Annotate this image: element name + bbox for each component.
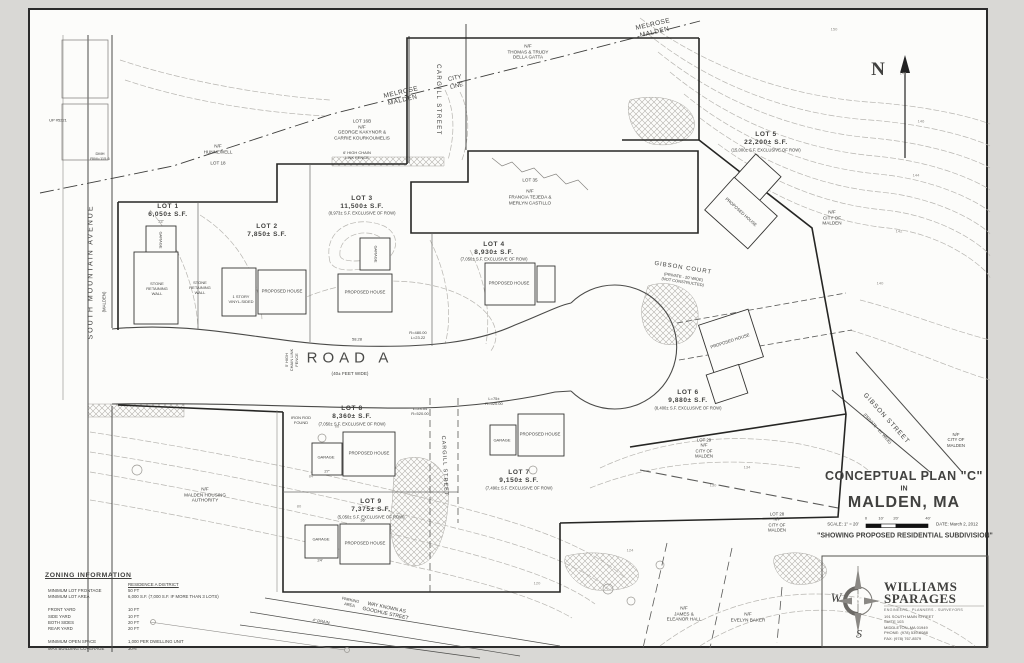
lot-7-note: (7,490± S.F. EXCLUSIVE OF ROW)	[486, 485, 553, 490]
lot-2-label: LOT 2 7,850± S.F.	[247, 223, 286, 239]
existing-dwelling-note: 1 STORY VINYL-SIDED	[228, 295, 253, 305]
scale-tick-40: 40'	[925, 517, 930, 522]
plan-title: CONCEPTUAL PLAN "C"	[825, 469, 983, 485]
owner-tejeda-castillo: LOT 35 N/F FRANCIA TEJEDA & MERLYN CASTI…	[509, 178, 552, 207]
contour-label: 88	[335, 425, 339, 430]
contour-label: 148	[900, 72, 907, 77]
city-boundary-line	[40, 21, 700, 193]
lot-5-note: (15,000± S.F. EXCLUSIVE OF ROW)	[731, 147, 800, 152]
south-mountain-avenue-label: SOUTH MOUNTAIN AVENUE	[88, 204, 97, 339]
logo-address: 191 SOUTH MAIN STREET SUITE 103 MIDDLETO…	[884, 614, 934, 641]
lot-3-label: LOT 3 11,500± S.F.	[340, 195, 383, 211]
lot-9-note: (5,050± S.F. EXCLUSIVE OF ROW)	[338, 514, 405, 519]
lot-7-label: LOT 7 9,150± S.F.	[499, 469, 538, 485]
street-lines	[63, 24, 962, 658]
proposed-house-label: PROPOSED HOUSE	[520, 431, 561, 436]
contour-label: 144	[913, 174, 920, 179]
logo-tagline: ENGINEERS - PLANNERS - SURVEYORS	[884, 608, 963, 612]
dimension-36: 36'	[360, 519, 365, 524]
stone-wall-note-2: STONE RETAINING WALL	[189, 281, 210, 295]
south-mountain-note: (MALDEN)	[101, 292, 106, 313]
owner-city-of-malden-east: N/F CITY OF MALDEN	[822, 209, 841, 226]
plan-title-city: MALDEN, MA	[848, 493, 960, 513]
drain-manhole-note: DMH RIM=115.6	[90, 152, 109, 162]
garage-label: GARAGE	[373, 245, 378, 262]
plan-subtitle: "SHOWING PROPOSED RESIDENTIAL SUBDIVISIO…	[817, 533, 993, 542]
road-a-lines	[112, 285, 677, 409]
owner-hunnewell: N/F HUNNEWELL LOT 18	[204, 144, 233, 167]
lot-9-label: LOT 9 7,375± S.F.	[351, 498, 390, 514]
utility-pole-note: UP #5221	[49, 119, 67, 124]
contour-label: 150	[831, 28, 838, 33]
contour-label: 130	[710, 484, 717, 489]
dimension-27: 27'	[324, 470, 329, 475]
scale-tick-20: 20'	[893, 517, 898, 522]
contour-label: 124	[627, 549, 634, 554]
curve-note-3: L=75± R=520.00	[485, 397, 502, 407]
abutter-buildings	[62, 40, 108, 160]
plan-linework	[0, 0, 1024, 663]
garage-label: GARAGE	[493, 439, 510, 444]
lot-8-note: (7,050± S.F. EXCLUSIVE OF ROW)	[319, 421, 386, 426]
plan-sheet-canvas: SOUTH MOUNTAIN AVENUE (MALDEN) CARGILL S…	[0, 0, 1024, 663]
garage-label: GARAGE	[317, 456, 334, 461]
stone-wall-note-1: STONE RETAINING WALL	[146, 282, 167, 296]
lot-3-note: (8,973± S.F. EXCLUSIVE OF ROW)	[329, 210, 396, 215]
owner-lot28-city: LOT 28 N/F CITY OF MALDEN	[768, 511, 786, 532]
curve-note-1: R=480.00 L=23.22	[409, 331, 426, 341]
scale-tick-10: 10'	[878, 517, 883, 522]
compass-s-letter: S	[856, 627, 862, 642]
lot-6-label: LOT 6 9,880± S.F.	[668, 389, 707, 405]
contour-label: 120	[534, 582, 541, 587]
lot-8-label: LOT 8 8,360± S.F.	[332, 405, 371, 421]
dimension-24: 24'	[317, 559, 322, 564]
north-label: N	[871, 58, 885, 82]
owner-della-gatta: N/F THOMAS & TRUDY DELLA GATTA	[507, 43, 548, 60]
fence-note-1: 5' HIGH CHAIN LINK FENCE	[285, 349, 299, 371]
contour-label: 80	[297, 505, 301, 510]
fence-note-2: 6' HIGH CHAIN LINK FENCE	[343, 151, 371, 161]
owner-city-of-malden-gibson: N/F CITY OF MALDEN	[947, 432, 965, 448]
dimension-22: 22'	[158, 220, 163, 225]
road-a-width-note: (40± FEET WIDE)	[332, 371, 369, 377]
lot-4-label: LOT 4 8,930± S.F.	[474, 241, 513, 257]
owner-hall: N/F JAMES & ELEANOR HALL	[667, 605, 702, 622]
curve-note-2: L=23.04 R=520.00	[411, 407, 428, 417]
zoning-values-column: 50 FT 6,000 S.F. (7,000 S.F. IF MORE THA…	[128, 588, 219, 652]
logo-firm-name: WILLIAMS SPARAGES	[884, 581, 957, 605]
proposed-house-label: PROPOSED HOUSE	[262, 288, 303, 293]
zoning-title: ZONING INFORMATION	[45, 573, 132, 579]
distance-note: 58.28	[352, 338, 362, 343]
contour-label: 142	[896, 230, 903, 235]
road-a-label: ROAD A	[307, 350, 394, 369]
lot-1-label: LOT 1 6,050± S.F.	[148, 203, 187, 219]
scale-tick-0: 0	[865, 517, 867, 522]
iron-rod-note: IRON ROD FOUND	[291, 416, 311, 426]
contour-label: 134	[744, 466, 751, 471]
contour-label: 146	[918, 120, 925, 125]
compass-ampersand: &	[853, 591, 865, 609]
zoning-labels-column: MINIMUM LOT FRONTAGE MINIMUM LOT AREA FR…	[48, 588, 104, 652]
scale-label: SCALE: 1" = 20'	[827, 521, 859, 527]
lot-4-note: (7,050± S.F. EXCLUSIVE OF ROW)	[461, 256, 528, 261]
garage-label: GARAGE	[312, 538, 329, 543]
cargill-street-upper-label: CARGILL STREET	[433, 64, 441, 136]
contour-label: 140	[877, 282, 884, 287]
date-label: DATE: March 2, 2012	[936, 521, 978, 527]
owner-kakynor: LOT 16B N/F GEORGE KAKYNOR & CARRIE KOUR…	[334, 119, 390, 142]
compass-w-letter: W	[831, 590, 842, 606]
scale-bar	[866, 524, 928, 528]
owner-lot29-city: LOT 29 N/F CITY OF MALDEN	[695, 437, 713, 458]
lot-6-note: (8,400± S.F. EXCLUSIVE OF ROW)	[655, 405, 722, 410]
proposed-house-label: PROPOSED HOUSE	[349, 450, 390, 455]
proposed-house-label: PROPOSED HOUSE	[489, 280, 530, 285]
lot-5-label: LOT 5 22,200± S.F.	[744, 131, 788, 147]
owner-malden-housing: N/F MALDEN HOUSING AUTHORITY	[184, 486, 226, 503]
proposed-house-label: PROPOSED HOUSE	[345, 289, 386, 294]
proposed-house-label: PROPOSED HOUSE	[345, 540, 386, 545]
contour-label: 84	[309, 475, 313, 480]
owner-baker: N/F EVELYN BAKER	[731, 611, 766, 622]
garage-label: GARAGE	[158, 231, 163, 248]
